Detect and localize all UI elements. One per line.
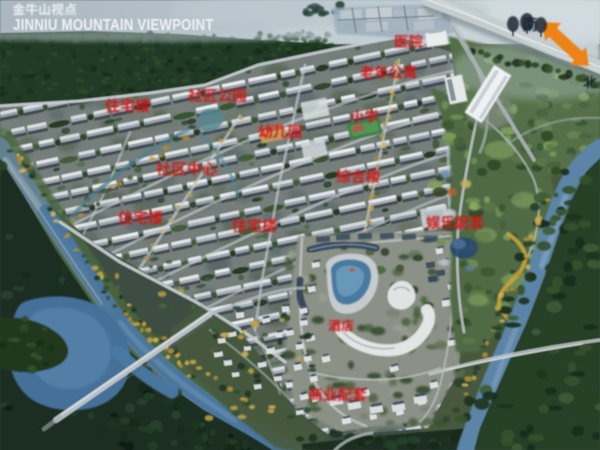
svg-text:JINNIU MOUNTAIN VIEWPOINT: JINNIU MOUNTAIN VIEWPOINT: [13, 17, 214, 34]
